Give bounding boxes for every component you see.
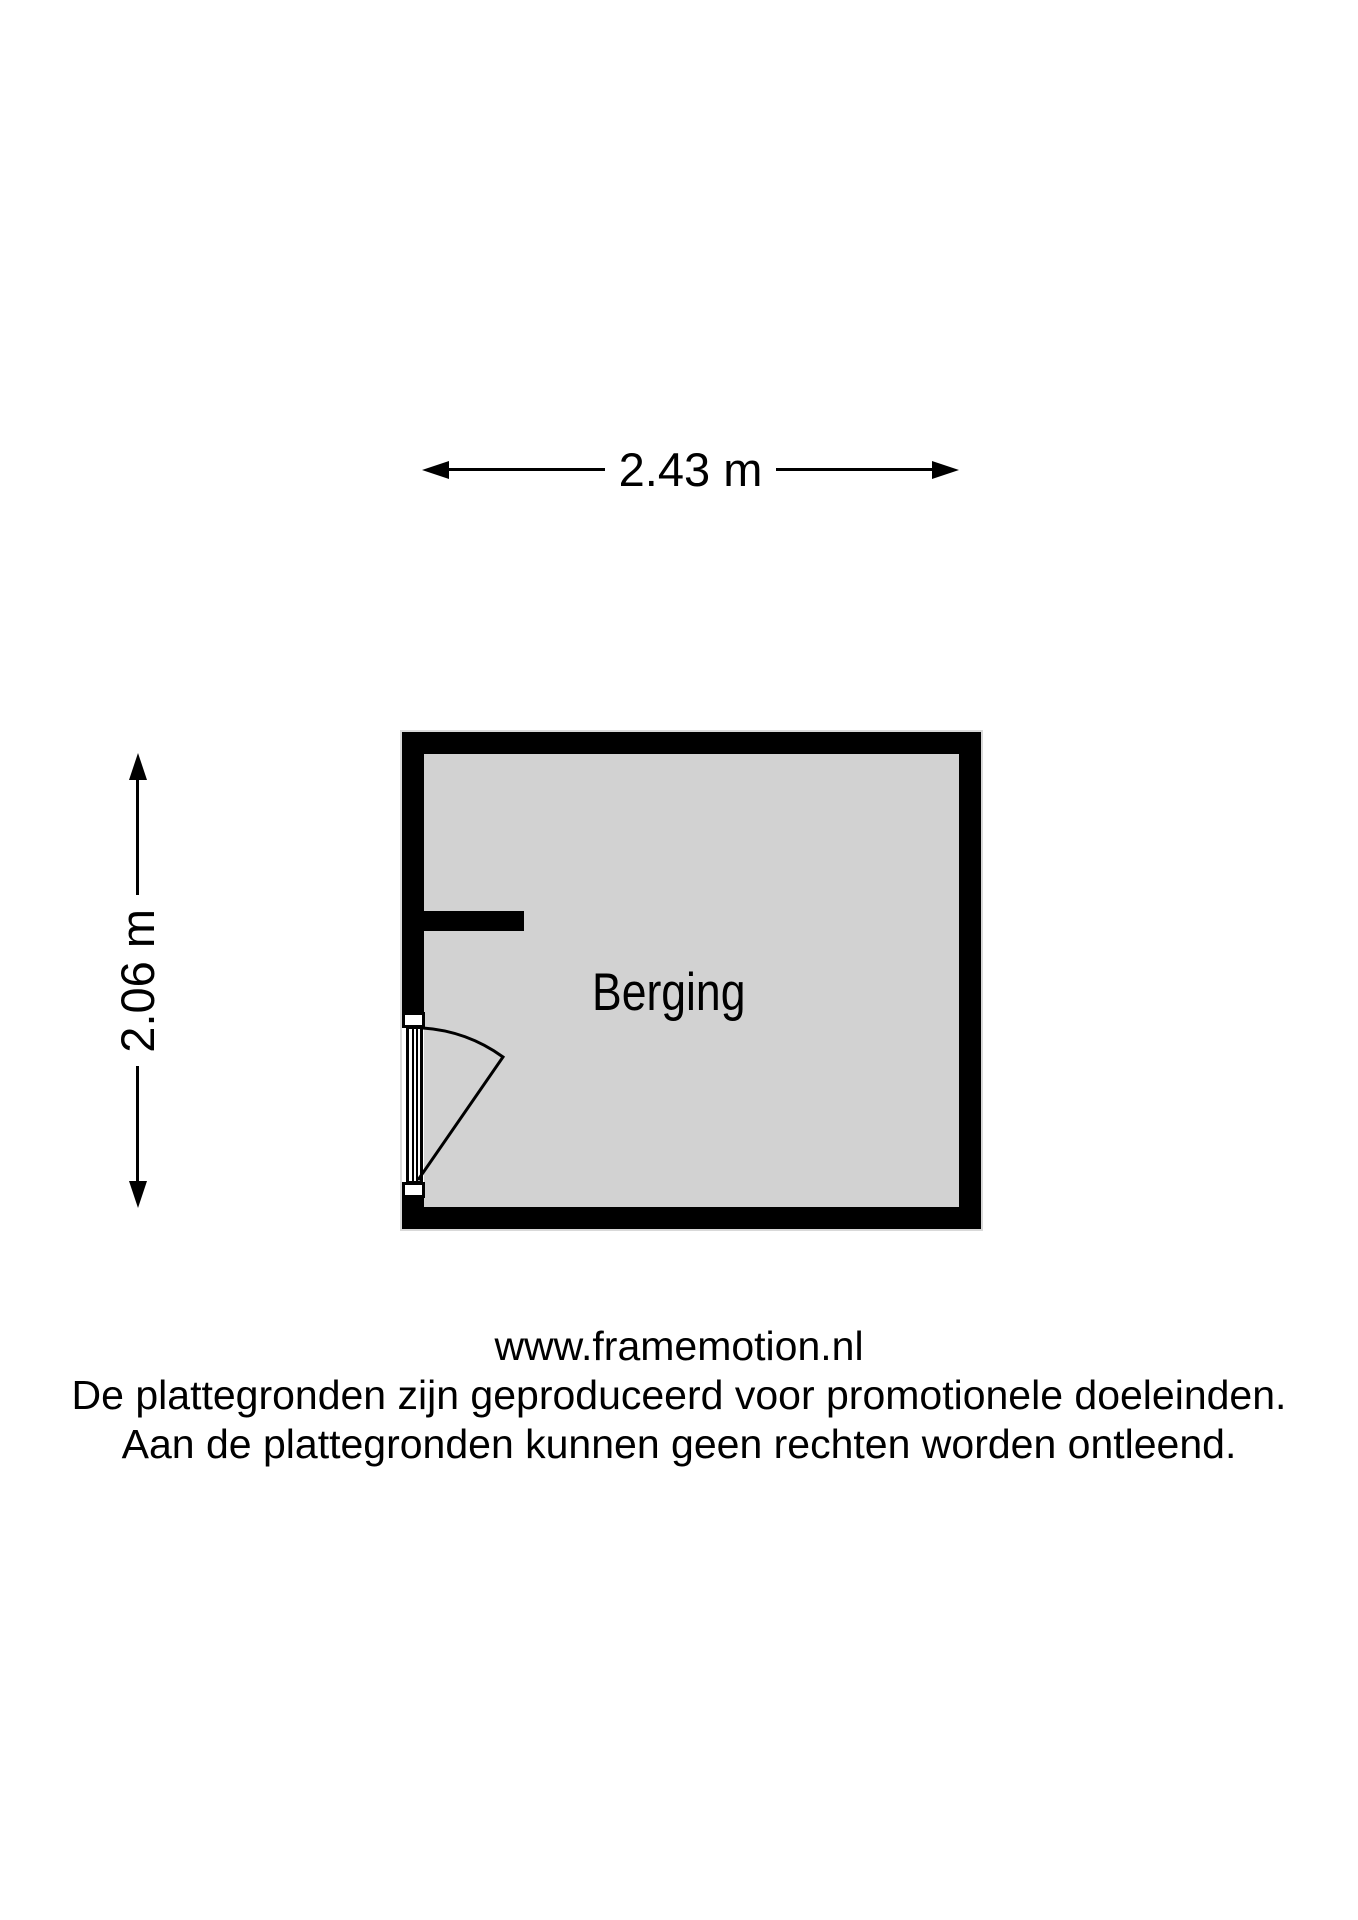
website-text: www.framemotion.nl: [0, 1322, 1358, 1371]
arrow-right-icon: [932, 461, 959, 479]
dimension-width: 2.43 m: [422, 446, 959, 493]
arrow-up-icon: [129, 753, 147, 780]
disclaimer-line-1: De plattegronden zijn geproduceerd voor …: [0, 1371, 1358, 1420]
dimension-height-label: 2.06 m: [114, 895, 161, 1067]
dimension-width-label: 2.43 m: [605, 446, 777, 493]
room-label: Berging: [592, 966, 745, 1019]
floorplan-canvas: 2.43 m 2.06 m Berging www.framemotion.nl…: [0, 0, 1358, 1920]
dimension-line: [136, 780, 139, 895]
dimension-line: [449, 468, 605, 471]
dimension-line: [776, 468, 932, 471]
disclaimer-line-2: Aan de plattegronden kunnen geen rechten…: [0, 1420, 1358, 1469]
dimension-line: [136, 1066, 139, 1181]
arrow-left-icon: [422, 461, 449, 479]
footer-disclaimer: www.framemotion.nl De plattegronden zijn…: [0, 1322, 1358, 1469]
dimension-height: 2.06 m: [114, 753, 161, 1208]
room-berging: Berging: [402, 732, 981, 1229]
arrow-down-icon: [129, 1181, 147, 1208]
